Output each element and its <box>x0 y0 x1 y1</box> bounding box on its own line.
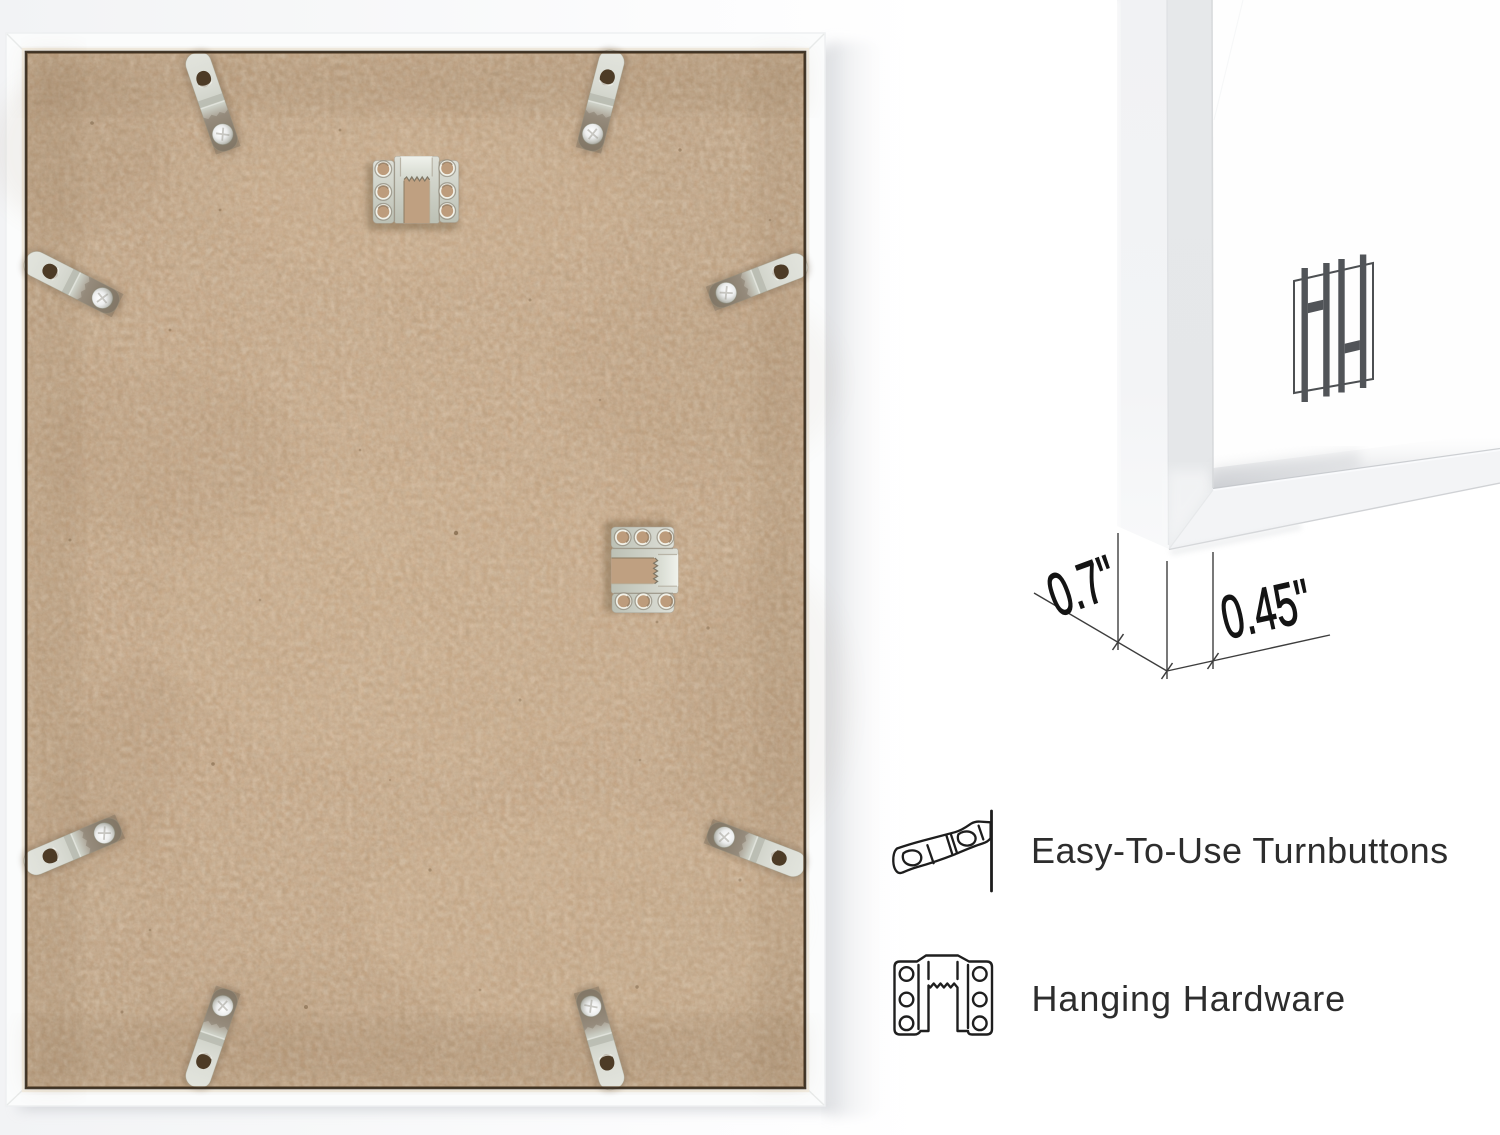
svg-text:Hanging Hardware: Hanging Hardware <box>1032 978 1347 1019</box>
svg-text:Easy-To-Use Turnbuttons: Easy-To-Use Turnbuttons <box>1031 830 1449 871</box>
